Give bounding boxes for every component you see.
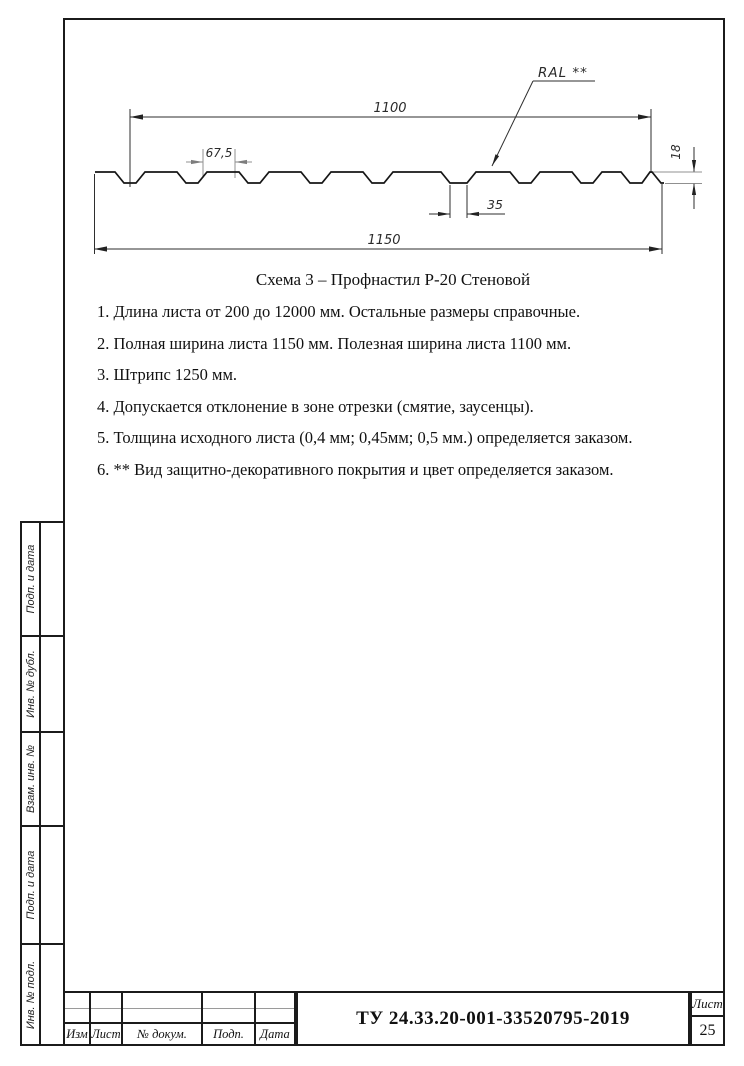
revision-empty-cell [123,993,201,1008]
note-line: 3. Штрипс 1250 мм. [97,365,707,384]
revision-empty-cell [123,1008,201,1022]
profile-outline [95,172,664,183]
side-stamp-section: Взам. инв. № [22,733,63,827]
side-stamp-label: Взам. инв. № [25,745,37,813]
side-stamp-label-cell: Инв. № дубл. [22,637,41,731]
revision-empty-cell [65,1008,89,1022]
side-stamp-label: Подп. и дата [25,851,37,920]
side-stamp-section: Инв. № подл. [22,945,63,1044]
side-stamp-label: Подп. и дата [25,545,37,614]
note-line: 6. ** Вид защитно-декоративного покрытия… [97,460,707,479]
side-stamp-blank-cell [41,945,63,1044]
revision-column: Лист [91,993,123,1044]
note-line: 5. Толщина исходного листа (0,4 мм; 0,45… [97,428,707,447]
revision-empty-cell [91,993,121,1008]
revision-table: Изм Лист № докум. Подп. Дата [63,991,296,1046]
side-stamp-label-cell: Взам. инв. № [22,733,41,825]
dim-height-label: 18 [669,144,683,160]
side-stamp-label-cell: Инв. № подл. [22,945,41,1044]
side-stamp-label: Инв. № подл. [25,960,37,1028]
dim-rib-width-label: 35 [487,197,503,212]
side-stamp-blank-cell [41,827,63,943]
leader-ral-label: RAL ** [538,65,588,81]
side-stamp-section: Подп. и дата [22,827,63,945]
side-stamp-section: Подп. и дата [22,523,63,637]
revision-empty-cell [256,993,294,1008]
side-stamp-blank-cell [41,523,63,635]
revision-header-cell: № докум. [123,1022,201,1044]
revision-empty-cell [203,993,254,1008]
note-line: 4. Допускается отклонение в зоне отрезки… [97,397,707,416]
revision-column: Изм [65,993,91,1044]
side-stamp-blank-cell [41,733,63,825]
dim-full-width-label: 1150 [367,233,400,248]
note-line: 1. Длина листа от 200 до 12000 мм. Остал… [97,302,707,321]
side-stamp-label: Инв. № дубл. [25,650,37,718]
revision-column: Дата [256,993,294,1044]
side-stamp-section: Инв. № дубл. [22,637,63,733]
dim-useful-width-label: 1100 [373,101,406,116]
sheet-cell: Лист 25 [690,991,725,1046]
note-line: 2. Полная ширина листа 1150 мм. Полезная… [97,334,707,353]
revision-column: Подп. [203,993,256,1044]
side-stamp-blank-cell [41,637,63,731]
profile-drawing: 1100 67,5 RAL ** 18 35 1150 [63,35,723,270]
sheet-label: Лист [692,993,723,1017]
revision-empty-cell [203,1008,254,1022]
revision-header-cell: Изм [65,1022,89,1044]
side-stamp-label-cell: Подп. и дата [22,827,41,943]
revision-empty-cell [91,1008,121,1022]
document-page: 1100 67,5 RAL ** 18 35 1150 Схема 3 – Пр… [0,0,744,1066]
revision-header-cell: Дата [256,1022,294,1044]
revision-column: № докум. [123,993,203,1044]
side-stamp-label-cell: Подп. и дата [22,523,41,635]
dim-pitch-label: 67,5 [206,146,233,160]
notes-list: 1. Длина листа от 200 до 12000 мм. Остал… [97,302,707,479]
revision-header-cell: Подп. [203,1022,254,1044]
sheet-number: 25 [692,1017,723,1044]
revision-empty-cell [256,1008,294,1022]
revision-header-cell: Лист [91,1022,121,1044]
side-stamp: Подп. и дата Инв. № дубл. Взам. инв. № П… [20,521,65,1046]
dimension-arrows [94,114,696,251]
revision-empty-cell [65,993,89,1008]
document-number-cell: ТУ 24.33.20-001-33520795-2019 [296,991,690,1046]
drawing-caption: Схема 3 – Профнастил Р-20 Стеновой [63,270,723,290]
